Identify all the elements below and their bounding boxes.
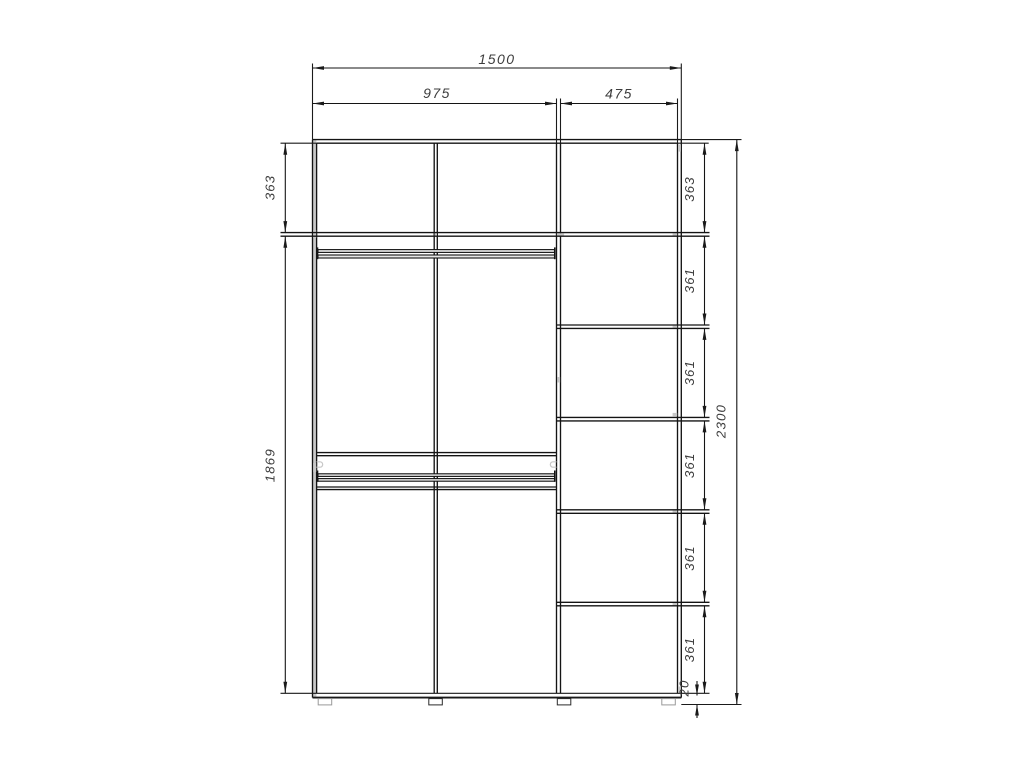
svg-text:1869: 1869 bbox=[263, 448, 278, 482]
svg-text:361: 361 bbox=[682, 452, 697, 478]
svg-text:363: 363 bbox=[682, 176, 697, 202]
svg-text:20: 20 bbox=[677, 679, 692, 697]
svg-text:361: 361 bbox=[682, 268, 697, 294]
svg-text:975: 975 bbox=[423, 85, 451, 101]
svg-text:361: 361 bbox=[682, 637, 697, 663]
svg-text:2300: 2300 bbox=[714, 404, 729, 439]
svg-text:361: 361 bbox=[682, 545, 697, 571]
svg-text:363: 363 bbox=[263, 175, 278, 201]
svg-text:475: 475 bbox=[605, 86, 633, 102]
svg-text:361: 361 bbox=[682, 360, 697, 386]
svg-text:1500: 1500 bbox=[478, 51, 515, 67]
